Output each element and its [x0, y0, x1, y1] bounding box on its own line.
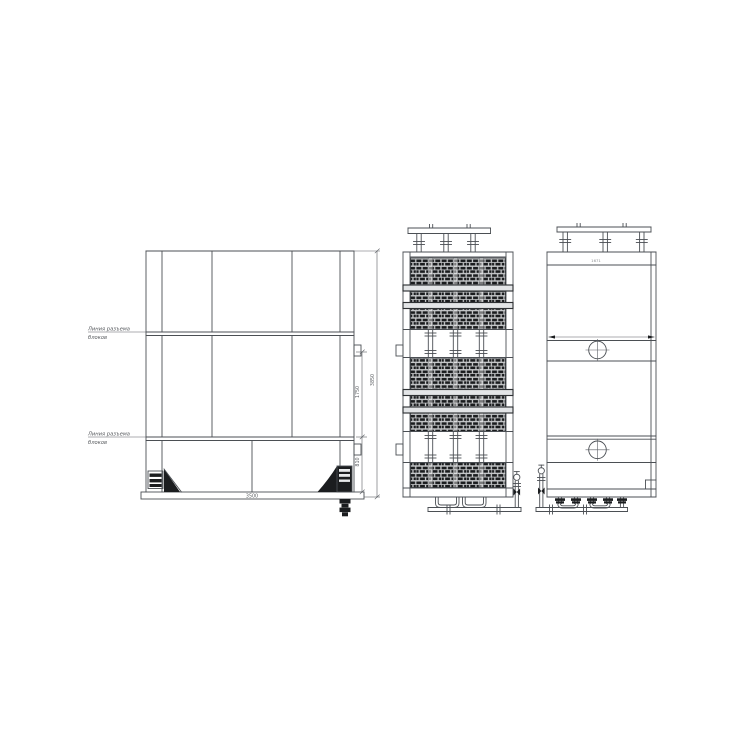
- end-view-top-marking: 1671: [591, 258, 601, 263]
- valve-icon: [513, 472, 521, 508]
- stub-flanges: [555, 497, 627, 507]
- dim-text-overall-height: 3850: [370, 374, 376, 386]
- end-casing: [547, 252, 656, 497]
- parting-label-lower-line2: блоков: [88, 440, 107, 446]
- anchor-bolt: [340, 499, 351, 516]
- dim-text-width: 3500: [246, 494, 258, 500]
- bottom-piping-end: [536, 465, 628, 514]
- dim-text-middle-height: 1750: [355, 386, 361, 398]
- lifting-lug-side-upper: [396, 345, 403, 356]
- dimension-middle-height: 1750 810: [355, 350, 367, 495]
- top-manifold-end: [557, 224, 651, 253]
- support-foot-right: [318, 466, 353, 492]
- end-view: 1671: [536, 224, 656, 515]
- internal-width-line: [549, 335, 655, 338]
- center-mark-icon-lower: [586, 439, 610, 461]
- cooler-unit-drawing: Линия разъема блоков Линия разъема блоко…: [0, 0, 750, 750]
- center-mark-icon-upper: [586, 339, 610, 361]
- dim-text-base-height: 810: [355, 457, 361, 466]
- lifting-lug-lower: [354, 444, 361, 455]
- parting-label-lower-line1: Линия разъема: [87, 432, 130, 438]
- technical-drawing-page: Линия разъема блоков Линия разъема блоко…: [0, 0, 750, 750]
- top-manifold-side: [408, 225, 491, 253]
- valve-icon-end: [538, 465, 546, 507]
- parting-line-label-lower: Линия разъема блоков: [87, 432, 146, 447]
- lifting-lug-side-lower: [396, 444, 403, 455]
- parting-label-upper-line2: блоков: [88, 335, 107, 341]
- block-gap-upper: [403, 330, 513, 358]
- front-view: Линия разъема блоков Линия разъема блоко…: [87, 249, 380, 517]
- front-frame: [146, 251, 354, 492]
- parting-label-upper-line1: Линия разъема: [87, 327, 130, 333]
- block-gap-lower: [403, 432, 513, 463]
- parting-line-label-upper: Линия разъема блоков: [87, 327, 146, 342]
- side-view: [396, 225, 521, 515]
- support-foot-left: [148, 469, 182, 492]
